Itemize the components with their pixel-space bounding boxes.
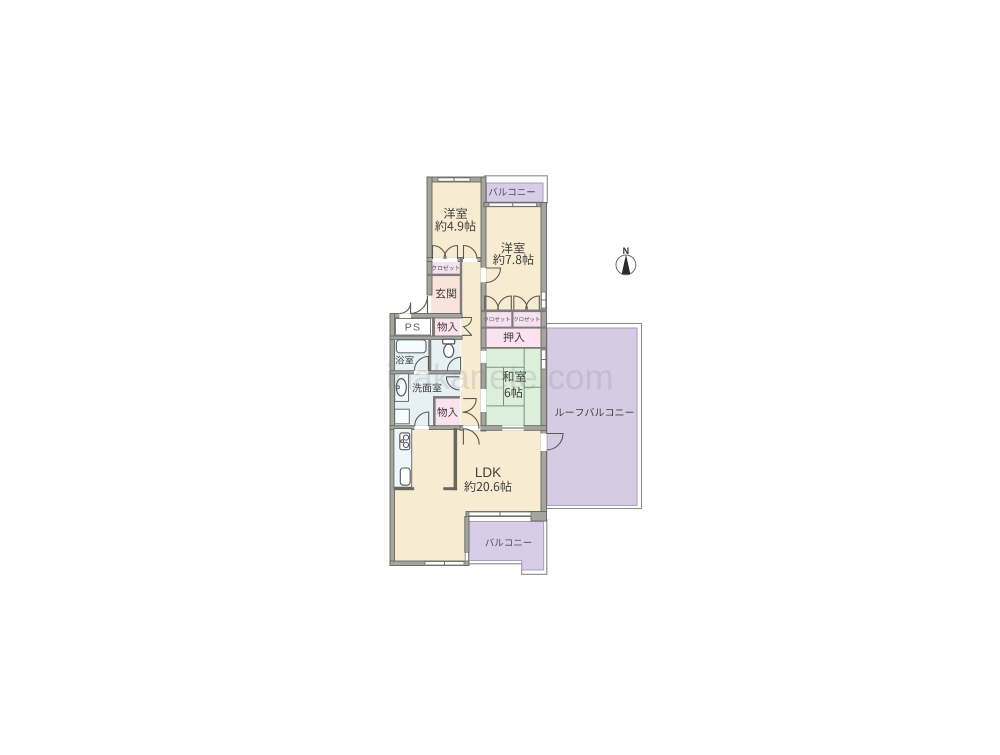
svg-text:LDK: LDK: [475, 465, 501, 480]
svg-text:PS: PS: [405, 322, 421, 334]
svg-text:N: N: [623, 246, 630, 256]
svg-text:inakanete.com: inakanete.com: [386, 358, 614, 397]
